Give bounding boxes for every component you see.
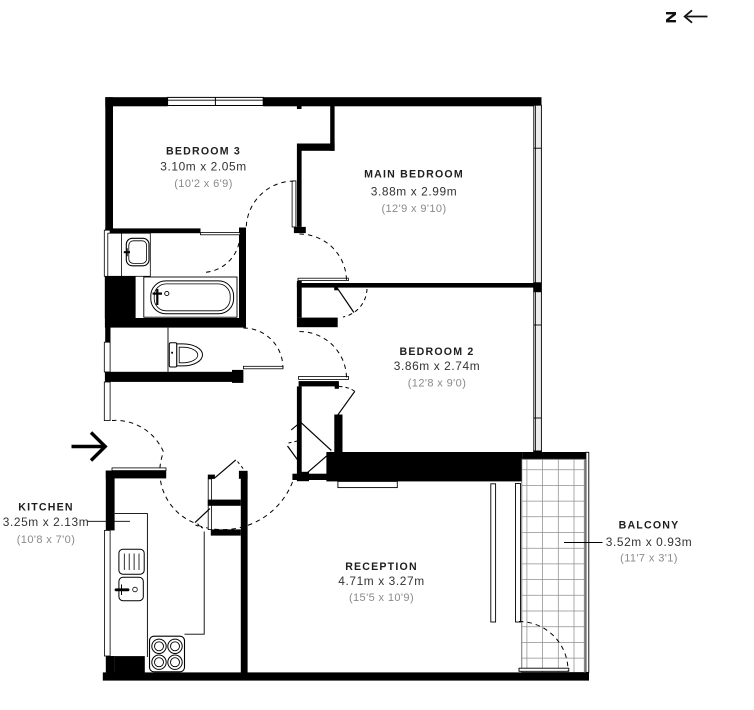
svg-text:3.10m x 2.05m: 3.10m x 2.05m <box>160 160 246 174</box>
svg-text:MAIN BEDROOM: MAIN BEDROOM <box>364 169 464 181</box>
svg-text:3.25m x 2.13m: 3.25m x 2.13m <box>3 515 89 529</box>
svg-text:(10'8 x 7'0): (10'8 x 7'0) <box>17 534 76 546</box>
svg-text:KITCHEN: KITCHEN <box>18 502 73 514</box>
svg-text:3.52m x 0.93m: 3.52m x 0.93m <box>606 535 692 549</box>
svg-text:4.71m x 3.27m: 4.71m x 3.27m <box>338 574 424 588</box>
svg-text:3.86m x 2.74m: 3.86m x 2.74m <box>394 359 480 373</box>
svg-text:BALCONY: BALCONY <box>619 520 680 532</box>
svg-text:(11'7 x 3'1): (11'7 x 3'1) <box>620 553 678 565</box>
svg-text:RECEPTION: RECEPTION <box>345 561 418 573</box>
svg-text:(15'5 x 10'9): (15'5 x 10'9) <box>349 592 414 604</box>
svg-text:(12'8 x 9'0): (12'8 x 9'0) <box>408 377 467 389</box>
svg-text:(12'9 x 9'10): (12'9 x 9'10) <box>381 203 446 215</box>
svg-text:3.88m x 2.99m: 3.88m x 2.99m <box>371 184 457 198</box>
svg-text:BEDROOM 2: BEDROOM 2 <box>400 346 475 358</box>
svg-text:(10'2 x 6'9): (10'2 x 6'9) <box>174 178 233 190</box>
svg-text:BEDROOM 3: BEDROOM 3 <box>166 146 241 158</box>
